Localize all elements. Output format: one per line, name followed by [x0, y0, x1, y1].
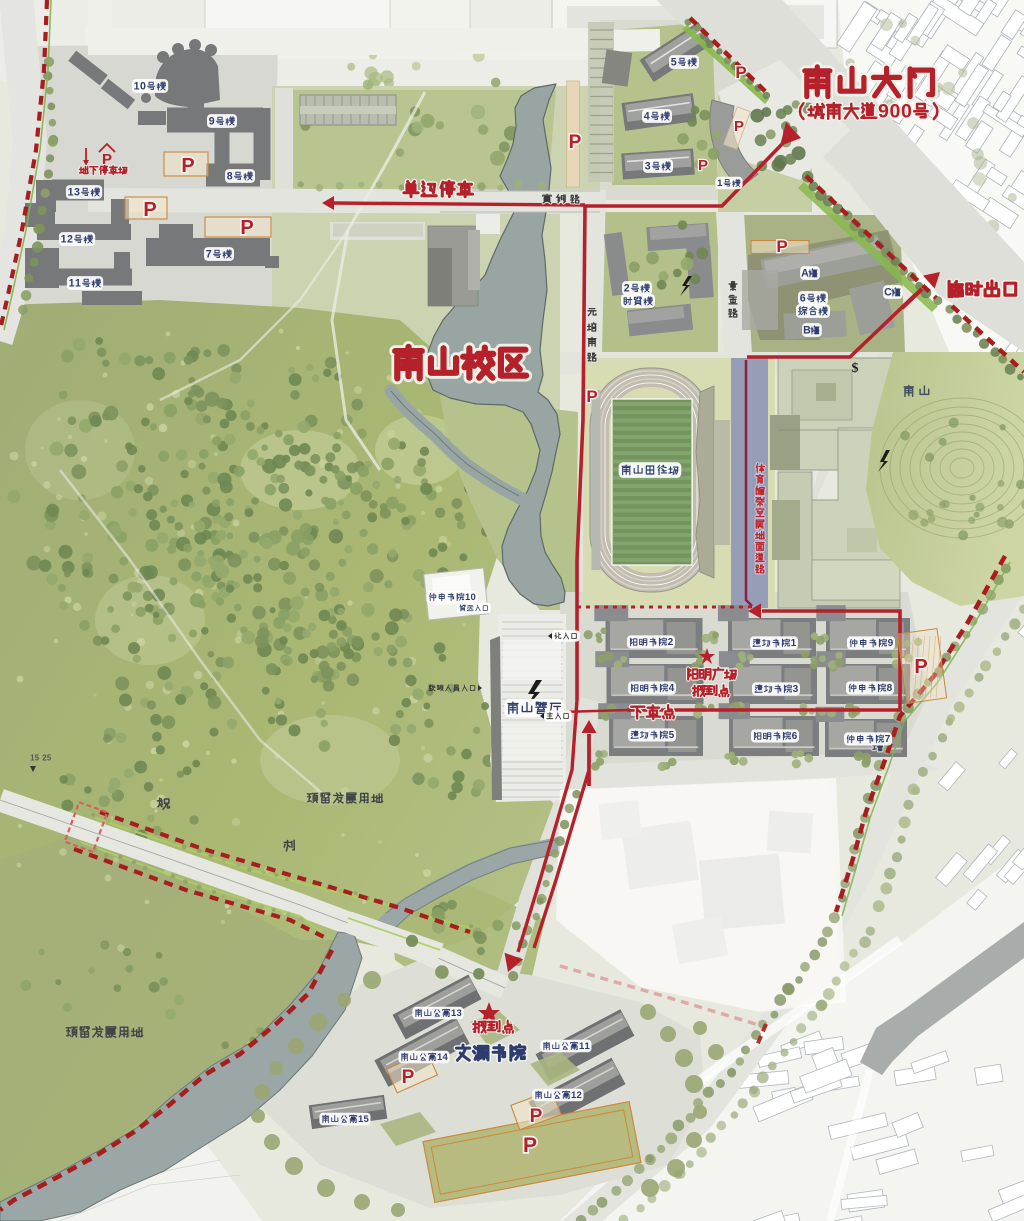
svg-text:5: 5	[35, 754, 40, 763]
svg-text:5: 5	[364, 1114, 370, 1125]
svg-text:P: P	[240, 217, 253, 239]
svg-text:4: 4	[669, 683, 675, 694]
svg-text:1: 1	[68, 186, 74, 198]
svg-text:8: 8	[887, 683, 893, 694]
svg-text:P: P	[402, 1067, 415, 1088]
svg-text:9: 9	[888, 638, 894, 649]
svg-text:2: 2	[67, 233, 73, 245]
svg-text:3: 3	[457, 1008, 462, 1019]
svg-text:1: 1	[791, 638, 797, 649]
svg-text:2: 2	[624, 282, 630, 294]
svg-text:P: P	[698, 157, 708, 174]
svg-text:2: 2	[577, 1090, 582, 1101]
svg-text:3: 3	[793, 684, 799, 695]
svg-text:P: P	[586, 387, 597, 406]
svg-text:6: 6	[800, 292, 806, 304]
svg-text:P: P	[735, 63, 746, 82]
svg-text:0: 0	[471, 592, 476, 603]
svg-text:0: 0	[889, 100, 900, 122]
svg-text:1: 1	[717, 178, 723, 189]
svg-text:P: P	[734, 118, 744, 135]
svg-text:C: C	[884, 286, 892, 298]
svg-text:5: 5	[671, 56, 677, 68]
svg-text:1: 1	[585, 1041, 591, 1052]
svg-text:1: 1	[61, 233, 67, 245]
svg-text:P: P	[530, 1106, 543, 1127]
svg-text:6: 6	[792, 731, 798, 742]
svg-text:0: 0	[140, 80, 146, 92]
svg-text:P: P	[776, 237, 787, 256]
svg-text:P: P	[181, 155, 194, 177]
svg-text:$: $	[852, 361, 859, 376]
svg-text:9: 9	[209, 115, 215, 127]
svg-text:7: 7	[206, 248, 212, 260]
svg-text:1: 1	[69, 277, 75, 289]
svg-text:P: P	[914, 656, 927, 678]
svg-text:P: P	[143, 199, 156, 221]
svg-text:5: 5	[669, 730, 675, 741]
svg-text:P: P	[523, 1134, 537, 1157]
svg-text:3: 3	[74, 186, 80, 198]
svg-text:P: P	[569, 132, 582, 153]
svg-text:2: 2	[668, 637, 674, 648]
svg-text:0: 0	[901, 100, 912, 122]
svg-text:A: A	[801, 267, 809, 279]
svg-text:4: 4	[443, 1052, 449, 1063]
svg-text:4: 4	[644, 110, 650, 122]
svg-text:5: 5	[47, 754, 52, 763]
svg-text:7: 7	[885, 734, 891, 745]
svg-text:B: B	[803, 324, 811, 336]
svg-text:9: 9	[878, 100, 889, 122]
svg-text:3: 3	[645, 160, 651, 172]
svg-text:8: 8	[227, 170, 233, 182]
svg-text:1: 1	[75, 277, 81, 289]
svg-text:1: 1	[134, 80, 140, 92]
